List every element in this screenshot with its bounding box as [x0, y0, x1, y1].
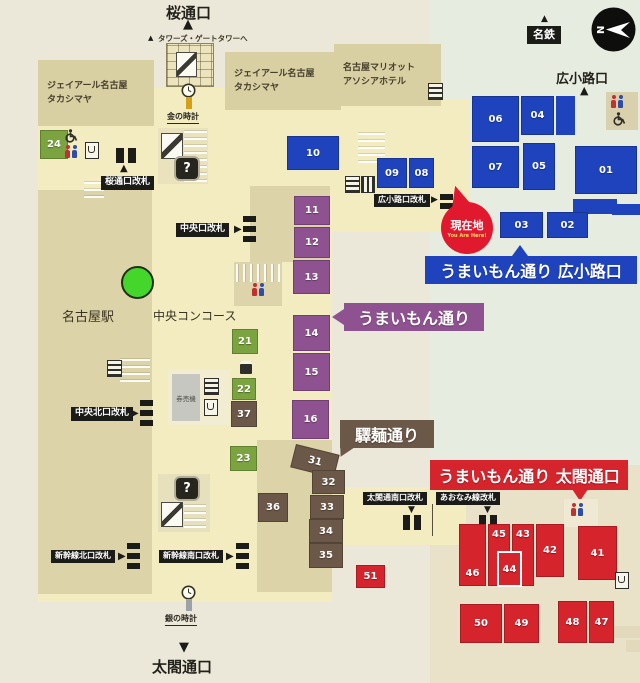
shop-unit-14: 14 [293, 315, 330, 351]
building-station-west [38, 190, 152, 594]
shop-unit-47: 47 [589, 601, 614, 643]
man-icon [72, 145, 77, 158]
gate-divider [432, 504, 433, 536]
shop-unit-46: 46 [459, 524, 486, 586]
banner-umaimon: うまいもん通り [344, 303, 484, 331]
man-icon [578, 503, 583, 516]
ticket-machine-box: 券売機 [172, 374, 200, 421]
hirokoji-gate-arrow-icon: ▶ [431, 196, 438, 205]
gate-label-aonami: あおなみ線改札 [436, 492, 500, 505]
compass-n-label: N [596, 26, 607, 34]
shop-unit-49: 49 [504, 604, 539, 643]
man-icon [259, 283, 264, 296]
escalator-icon-mid [161, 133, 183, 159]
gate-label-hirokoji: 広小路口改札 [374, 194, 430, 207]
shop-unit-08: 08 [409, 158, 434, 188]
taiko-south-gate-arrow-icon: ▼ [408, 506, 415, 515]
shop-unit-50: 50 [460, 604, 502, 643]
gate-bars-chuo-north [140, 400, 153, 426]
building-takashimaya-east: ジェイアール名古屋 タカシマヤ [225, 52, 341, 110]
banner-pointer-umaimon [332, 309, 344, 325]
north-exit-arrow-icon: ▲ [183, 18, 193, 31]
locker-icon-west [107, 360, 122, 377]
shop-unit-37: 37 [231, 401, 257, 427]
shop-unit-03: 03 [500, 212, 543, 238]
escalator-icon-north [176, 52, 197, 77]
vending-icon-kiosk [204, 399, 218, 416]
decor-blue-2 [612, 204, 640, 215]
shop-unit-44: 44 [497, 551, 522, 587]
gate-label-chuo-north: 中央北口改札 [71, 407, 133, 421]
gold-clock-label: 金の時計 [167, 111, 199, 124]
exit-label-south: 太閤通口 [152, 656, 212, 677]
steps-southeast-2 [626, 640, 640, 652]
shop-unit-41: 41 [578, 526, 617, 580]
green-circle-marker [121, 266, 154, 299]
gate-bars-shinkansen-south [236, 543, 249, 569]
gate-label-shinkansen-north: 新幹線北口改札 [51, 550, 115, 563]
gate-bars-shinkansen-north [127, 543, 140, 569]
gate-label-taiko-south: 太閤通南口改札 [363, 492, 427, 505]
decor-blue-3 [556, 96, 575, 135]
shop-unit-33: 33 [310, 495, 344, 519]
station-label: 名古屋駅 [62, 306, 114, 325]
shop-unit-11: 11 [294, 196, 330, 225]
shop-unit-34: 34 [309, 519, 343, 543]
gold-clock-icon [181, 83, 196, 98]
escalator-icon-south [161, 502, 183, 527]
vending-icon-taiko [615, 572, 629, 589]
shop-unit-13: 13 [293, 260, 330, 294]
shop-unit-09: 09 [377, 158, 407, 188]
man-icon [618, 95, 623, 108]
restroom-icons-east [611, 95, 623, 108]
you-are-here-label: 現在地 [451, 217, 484, 233]
shop-unit-36: 36 [258, 493, 288, 522]
information-icon-south: ? [176, 478, 198, 499]
building-label-line: タカシマヤ [47, 95, 154, 106]
shop-unit-01: 01 [575, 146, 637, 194]
shop-unit-15: 15 [293, 353, 330, 391]
east-exit-arrow-icon: ▲ [580, 85, 588, 96]
chuo-gate-arrow-icon: ▶ [234, 225, 242, 235]
meitetsu-arrow-icon: ▲ [541, 15, 548, 24]
gate-label-shinkansen-south: 新幹線南口改札 [159, 550, 223, 563]
restroom-icons-center [252, 283, 264, 296]
phone-icon-mid [361, 176, 375, 193]
building-label-line: アソシアホテル [343, 77, 441, 88]
locker-icon-mid [345, 176, 360, 193]
shop-unit-32: 32 [312, 470, 345, 494]
crosswalk-west [120, 356, 150, 382]
wheelchair-icon-east [612, 112, 626, 126]
sakura-gate-arrow-icon: ▲ [120, 164, 128, 174]
banner-umaimon-hirokoji: うまいもん通り 広小路口 [425, 256, 637, 284]
building-marriott: 名古屋マリオット アソシアホテル [334, 44, 441, 106]
shop-unit-10: 10 [287, 136, 339, 170]
gate-bars-chuo [243, 216, 256, 242]
restroom-icons-taiko [571, 503, 583, 516]
stairs-south-pattern [184, 500, 206, 528]
silver-clock-pole [186, 599, 192, 611]
you-are-here-balloon: 現在地 You Are Here! [441, 202, 493, 254]
silver-clock-icon [181, 585, 196, 600]
meitetsu-badge: 名鉄 [527, 26, 561, 44]
compass-icon: N [591, 7, 636, 52]
gate-label-sakura: 桜通口改札 [101, 176, 154, 190]
woman-icon [65, 145, 70, 158]
woman-icon [252, 283, 257, 296]
you-are-here-sublabel: You Are Here! [447, 233, 486, 239]
woman-icon [611, 95, 616, 108]
information-icon-north: ? [176, 158, 198, 179]
shinkansen-north-gate-arrow-icon: ▶ [118, 552, 126, 562]
vending-icon-northwest [85, 142, 99, 159]
shop-unit-51: 51 [356, 565, 385, 588]
restroom-icons-northwest [65, 145, 77, 158]
aonami-gate-arrow-icon: ▼ [484, 506, 491, 515]
building-label-line: ジェイアール名古屋 [47, 81, 154, 92]
silver-clock-label: 銀の時計 [165, 613, 197, 626]
shop-unit-22: 22 [232, 378, 256, 400]
shop-unit-35: 35 [309, 543, 343, 568]
shop-unit-06: 06 [472, 96, 519, 142]
ticket-machine-label: 券売機 [176, 393, 196, 403]
gold-clock-pole [186, 97, 192, 109]
locker-icon-marriott [428, 83, 443, 100]
shop-unit-07: 07 [472, 146, 519, 188]
shop-unit-02: 02 [547, 212, 588, 238]
banner-umaimon-taiko: うまいもん通り 太閤通口 [430, 460, 628, 490]
shop-unit-23: 23 [230, 446, 257, 471]
station-floor-map: ジェイアール名古屋 タカシマヤ ジェイアール名古屋 タカシマヤ 名古屋マリオット… [0, 0, 640, 683]
woman-icon [571, 503, 576, 516]
shop-unit-48: 48 [558, 601, 587, 643]
building-label-line: 名古屋マリオット [343, 63, 441, 74]
building-takashimaya-west: ジェイアール名古屋 タカシマヤ [38, 60, 154, 126]
steps-southeast-1 [614, 626, 640, 638]
building-label-line: タカシマヤ [234, 83, 341, 94]
shop-unit-42: 42 [536, 524, 564, 577]
shop-unit-04: 04 [521, 96, 554, 135]
wheelchair-icon-northwest [64, 129, 78, 143]
shop-unit-05: 05 [523, 143, 555, 190]
towers-arrow-icon: ▲ [148, 35, 153, 42]
stairs-center-pattern [236, 264, 280, 282]
concourse-label: 中央コンコース [153, 307, 236, 324]
chuo-north-gate-arrow-icon: ▶ [131, 409, 139, 419]
shinkansen-south-gate-arrow-icon: ▶ [226, 552, 234, 562]
shop-unit-16: 16 [292, 400, 329, 439]
gate-bars-sakura [116, 148, 136, 163]
shop-unit-12: 12 [294, 227, 330, 258]
building-label-line: ジェイアール名古屋 [234, 69, 341, 80]
south-exit-arrow-icon: ▼ [179, 641, 189, 654]
gate-label-chuo: 中央口改札 [176, 223, 229, 237]
banner-pointer-hirokoji [512, 245, 528, 256]
shop-unit-21: 21 [232, 329, 258, 354]
gate-bars-taiko-south [403, 515, 421, 530]
banner-ekimen: 驛麺通り [340, 420, 434, 448]
locker-icon-kiosk [204, 378, 219, 395]
fare-machine-icon [240, 361, 252, 374]
